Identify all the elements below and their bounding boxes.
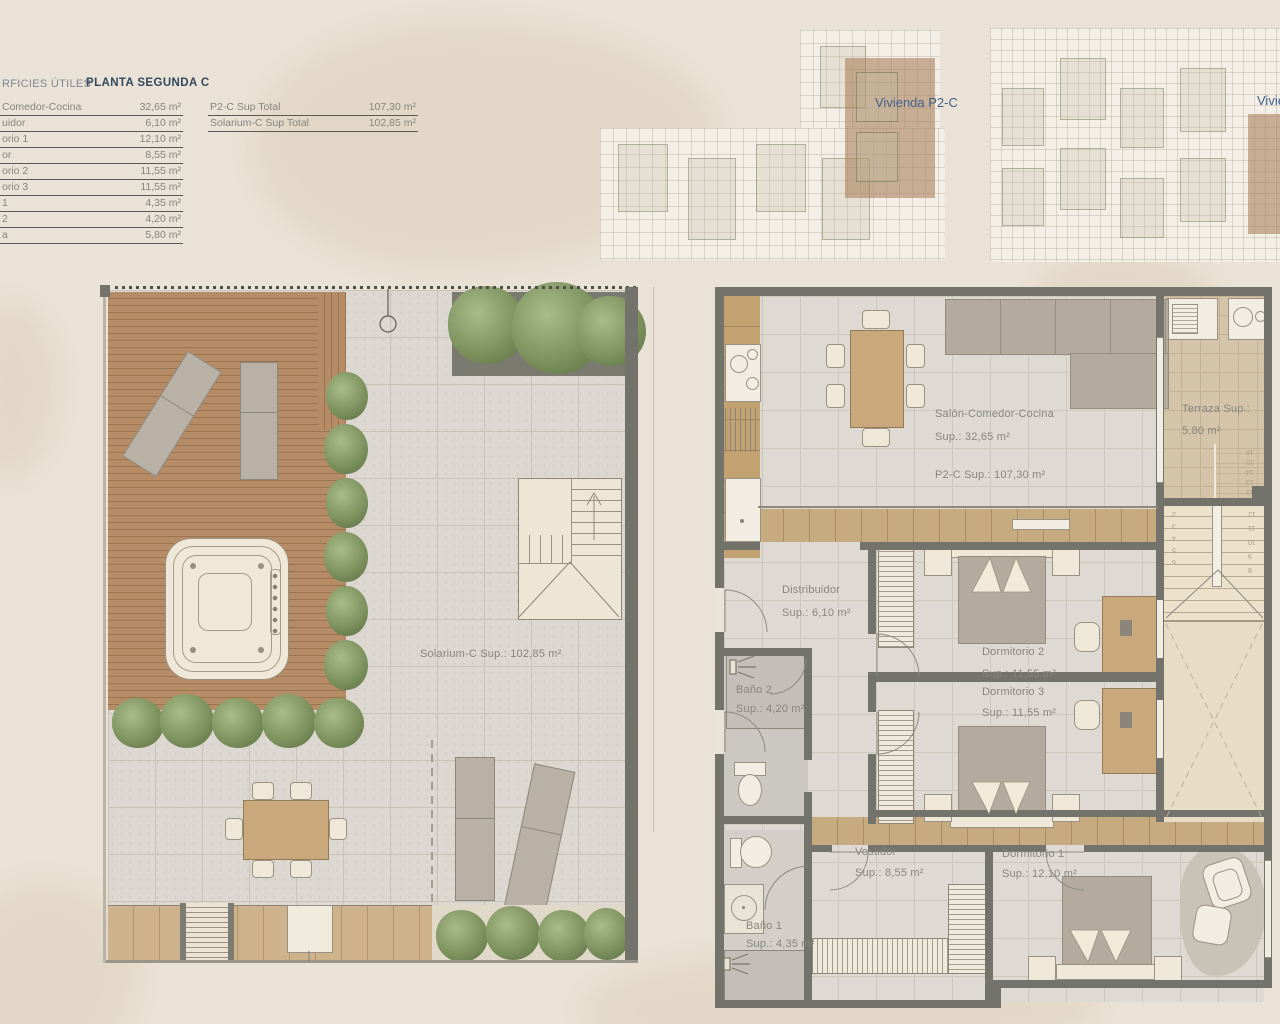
table-total-row: P2-C Sup Total 107,30 m²: [208, 100, 418, 116]
room-area: Sup.: 32,65 m²: [935, 431, 1054, 443]
jacuzzi-seat: [198, 573, 252, 631]
hedge-bush: [314, 698, 364, 748]
ottoman: [1191, 903, 1233, 947]
desk: [1102, 596, 1162, 680]
terraza-label: Terraza Sup.: 5,80 m²: [1182, 403, 1250, 437]
room-area: Sup.: 12,10 m²: [1002, 868, 1077, 880]
hedge-bush: [324, 532, 368, 582]
wall: [804, 648, 812, 760]
stair-number: 3: [1172, 522, 1176, 529]
row-label: a: [2, 229, 8, 241]
bed-footboard: [1056, 964, 1158, 980]
grate-rail: [180, 903, 186, 963]
sun-lounger: [240, 362, 278, 480]
unit-total-area: P2-C Sup.: 107,30 m²: [935, 469, 1054, 481]
highlighted-unit: [1248, 114, 1280, 234]
jacuzzi: [165, 538, 289, 680]
dormitorio1-label: Dormitorio 1 Sup.: 12,10 m²: [1002, 848, 1077, 880]
desk-monitor: [1120, 620, 1132, 636]
unit-cell: [618, 144, 668, 212]
hedge-bush: [262, 694, 316, 748]
room-area: Sup.: 8,55 m²: [855, 867, 924, 879]
room-area: Sup.: 11,55 m²: [982, 668, 1056, 680]
sink-basin: [1172, 304, 1198, 334]
wall: [715, 287, 1272, 296]
row-value: 8,55 m²: [145, 149, 181, 161]
hedge-bush: [324, 640, 368, 690]
window: [1157, 700, 1163, 758]
jacuzzi-control-panel: [270, 569, 281, 635]
hall-handle: [1012, 519, 1070, 530]
dining-chair: [862, 428, 890, 447]
row-label: orio 1: [2, 133, 28, 145]
bed: [958, 726, 1046, 818]
row-value: 5,80 m²: [145, 229, 181, 241]
bano1-label: Baño 1 Sup.: 4,35 m²: [746, 920, 815, 950]
wardrobe: [948, 884, 988, 974]
key-plan-right-label: Vivien: [1257, 93, 1280, 108]
salon-label: Salón-Comedor-Cocina Sup.: 32,65 m² P2-C…: [935, 408, 1054, 481]
stair-number: 11: [1248, 524, 1255, 531]
table-row: orio 3 11,55 m²: [0, 180, 183, 196]
hall-floor: [758, 509, 1158, 542]
stair-number: 10: [1248, 538, 1256, 545]
dining-chair: [252, 782, 274, 800]
wardrobe: [878, 546, 914, 648]
room-area: Sup.: 11,55 m²: [982, 707, 1056, 719]
wall: [985, 845, 993, 1008]
stair-number: 14: [1246, 468, 1254, 475]
unit-cell: [1002, 168, 1044, 226]
dining-chair: [826, 344, 845, 368]
stair-number: 4: [1172, 534, 1176, 541]
dining-chair: [290, 860, 312, 878]
table-row: uidor 6,10 m²: [0, 116, 183, 132]
dormitorio3-label: Dormitorio 3 Sup.: 11,55 m²: [982, 686, 1056, 719]
unit-cell: [1120, 178, 1164, 238]
room-name: Salón-Comedor-Cocina: [935, 408, 1054, 420]
window: [1265, 860, 1271, 958]
surface-table: RFICIES ÚTILES PLANTA SEGUNDA C Comedor-…: [0, 76, 430, 256]
desk-chair: [1074, 700, 1100, 730]
stair-flight: [571, 479, 621, 563]
table-row: orio 2 11,55 m²: [0, 164, 183, 180]
wardrobe: [878, 710, 914, 824]
dining-chair: [862, 310, 890, 329]
dormitorio2-label: Dormitorio 2 Sup.: 11,55 m²: [982, 646, 1056, 680]
stair-number: 2: [1172, 510, 1176, 517]
hedge-bush: [112, 698, 164, 748]
hedge-bush: [436, 910, 488, 962]
parapet-line: [106, 960, 638, 963]
wardrobe: [812, 938, 964, 974]
unit-cell: [1180, 158, 1226, 222]
jacuzzi-jet: [190, 647, 196, 653]
vestidor-label: Vestidor Sup.: 8,55 m²: [855, 846, 924, 879]
key-plan-center-label: Vivienda P2-C: [875, 95, 958, 110]
hedge-bush: [538, 910, 590, 962]
row-value: 11,55 m²: [140, 165, 181, 177]
nightstand: [1154, 956, 1182, 982]
wall: [625, 287, 638, 963]
unit-cell: [1060, 148, 1106, 210]
nightstand: [1028, 956, 1056, 982]
bed: [1062, 876, 1152, 968]
key-plan-right: [990, 28, 1280, 262]
dining-chair: [290, 782, 312, 800]
bano2-label: Baño 2 Sup.: 4,20 m²: [736, 684, 805, 715]
table-total-row: Solarium-C Sup Total 102,85 m²: [208, 116, 418, 132]
sofa-chaise: [1070, 353, 1169, 409]
total-value: 107,30 m²: [369, 101, 416, 113]
drain: [742, 906, 745, 909]
stair-landing-line: [1164, 620, 1264, 622]
wall: [860, 542, 1160, 550]
glass-balustrade-dotted: [115, 286, 638, 289]
nightstand: [1052, 546, 1080, 576]
row-label: orio 3: [2, 181, 28, 193]
nightstand: [924, 794, 952, 822]
dining-table: [850, 330, 904, 428]
room-name: Dormitorio 1: [1002, 848, 1077, 860]
room-name: Dormitorio 2: [982, 646, 1056, 658]
stair-flight: [519, 535, 571, 564]
row-label: orio 2: [2, 165, 28, 177]
room-area: Sup.: 4,20 m²: [736, 703, 805, 715]
table-row: a 5,80 m²: [0, 228, 183, 244]
sun-lounger: [455, 757, 495, 901]
nightstand: [1052, 794, 1080, 822]
glass-door: [1157, 337, 1163, 483]
hedge-bush: [486, 906, 540, 960]
table-row: 2 4,20 m²: [0, 212, 183, 228]
table-header-title: PLANTA SEGUNDA C: [86, 77, 210, 89]
stair-rail: [1212, 505, 1222, 587]
wall-cap: [100, 285, 110, 297]
door-gap: [715, 588, 724, 632]
distribuidor-label: Distribuidor Sup.: 6,10 m²: [782, 584, 851, 619]
dining-chair: [906, 384, 925, 408]
row-value: 11,55 m²: [140, 181, 181, 193]
dining-chair: [252, 860, 274, 878]
laundry-sink: [1166, 298, 1218, 340]
toilet-bowl: [740, 836, 772, 868]
unit-cell: [1180, 68, 1226, 132]
hedge-bush: [212, 698, 264, 748]
hedge-bush: [326, 372, 368, 420]
dining-table: [243, 800, 329, 860]
row-label: uidor: [2, 117, 25, 129]
row-label: or: [2, 149, 11, 161]
floor-joint: [758, 506, 1158, 508]
row-value: 6,10 m²: [145, 117, 181, 129]
stair-number: 6: [1172, 558, 1176, 565]
row-label: Comedor-Cocina: [2, 101, 81, 113]
room-area: Sup.: 4,35 m²: [746, 938, 815, 950]
dining-chair: [225, 818, 243, 840]
unit-cell: [688, 158, 736, 240]
row-value: 32,65 m²: [140, 101, 181, 113]
room-name: Distribuidor: [782, 584, 851, 596]
armchair-seat: [1211, 867, 1245, 904]
hedge-bush: [160, 694, 214, 748]
wall: [1156, 542, 1164, 822]
wall: [715, 816, 812, 824]
kitchen-appliance: [725, 478, 761, 542]
wall: [804, 824, 812, 1008]
key-plan-center: [600, 28, 945, 262]
edge-line: [653, 287, 654, 832]
solarium-area-label: Solarium-C Sup.: 102,85 m²: [420, 648, 562, 660]
wall: [1084, 845, 1264, 852]
total-label: P2-C Sup Total: [210, 101, 280, 113]
row-value: 4,20 m²: [145, 213, 181, 225]
room-name: Vestidor: [855, 846, 924, 858]
knob: [740, 519, 744, 523]
solarium-boardwalk: [108, 905, 432, 962]
door-gap: [715, 710, 724, 754]
floorplan-sheet: RFICIES ÚTILES PLANTA SEGUNDA C Comedor-…: [0, 0, 1280, 1024]
hedge-bush: [324, 424, 368, 474]
sink-basin: [731, 895, 757, 921]
cooktop: [725, 344, 761, 402]
deck-grate: [180, 903, 234, 963]
stair-number: 8: [1248, 566, 1252, 573]
stair-number: 9: [1248, 552, 1252, 559]
room-name: Baño 1: [746, 920, 815, 932]
wall: [715, 832, 724, 1008]
stair-number: 12: [1248, 510, 1256, 517]
table-row: or 8,55 m²: [0, 148, 183, 164]
stair-number: 13: [1246, 478, 1254, 485]
stair-number: 16: [1246, 448, 1254, 455]
wall: [724, 542, 760, 550]
room-name: Dormitorio 3: [982, 686, 1056, 698]
unit-cell: [1002, 88, 1044, 146]
wall: [812, 845, 832, 852]
dining-chair: [826, 384, 845, 408]
desk: [1102, 688, 1162, 774]
stair-number: 15: [1246, 458, 1254, 465]
wall: [868, 810, 1264, 817]
burner: [747, 349, 758, 360]
nightstand: [924, 546, 952, 576]
hedge-bush: [326, 478, 368, 528]
service-box: [287, 905, 333, 953]
wall: [715, 648, 812, 656]
dining-chair: [906, 344, 925, 368]
table-row: 1 4,35 m²: [0, 196, 183, 212]
grate-rail: [228, 903, 234, 963]
wall: [868, 550, 876, 634]
stair-number: 5: [1172, 546, 1176, 553]
hedge-bush: [326, 586, 368, 636]
total-label: Solarium-C Sup Total: [210, 117, 309, 129]
solarium-stairs: [518, 478, 622, 620]
jacuzzi-jet: [190, 563, 196, 569]
table-header-prefix: RFICIES ÚTILES: [2, 78, 91, 90]
room-name: Baño 2: [736, 684, 805, 696]
row-label: 2: [2, 213, 8, 225]
burner: [730, 355, 748, 373]
unit-cell: [756, 144, 806, 212]
dish-rack: [725, 408, 759, 452]
wall: [993, 980, 1001, 1008]
row-label: 1: [2, 197, 8, 209]
burner: [746, 377, 759, 390]
table-row: Comedor-Cocina 32,65 m²: [0, 100, 183, 116]
room-name: Terraza Sup.:: [1182, 403, 1250, 415]
unit-cell: [1060, 58, 1106, 120]
stair-landing-zone: [1164, 622, 1264, 822]
unit-cell: [856, 132, 898, 182]
row-value: 4,35 m²: [145, 197, 181, 209]
row-value: 12,10 m²: [140, 133, 181, 145]
wall: [715, 1000, 1001, 1008]
wall: [993, 980, 1272, 988]
room-area: 5,80 m²: [1182, 425, 1250, 437]
jacuzzi-jet: [258, 563, 264, 569]
desk-monitor: [1120, 712, 1132, 728]
parapet-line: [103, 287, 106, 963]
wall-pillar: [1252, 486, 1267, 500]
window: [1157, 600, 1163, 658]
total-value: 102,85 m²: [369, 117, 416, 129]
unit-cell: [1120, 88, 1164, 148]
shower1-cabin: [724, 950, 810, 1004]
watermark-blob: [0, 300, 60, 480]
dining-chair: [329, 818, 347, 840]
hedge-bush: [584, 908, 630, 960]
sofa: [945, 299, 1169, 355]
table-row: orio 1 12,10 m²: [0, 132, 183, 148]
washer-drum: [1233, 307, 1253, 327]
jacuzzi-jet: [258, 647, 264, 653]
desk-chair: [1074, 622, 1100, 652]
room-area: Sup.: 6,10 m²: [782, 607, 851, 619]
bed: [958, 556, 1046, 644]
toilet-bowl: [738, 774, 762, 806]
